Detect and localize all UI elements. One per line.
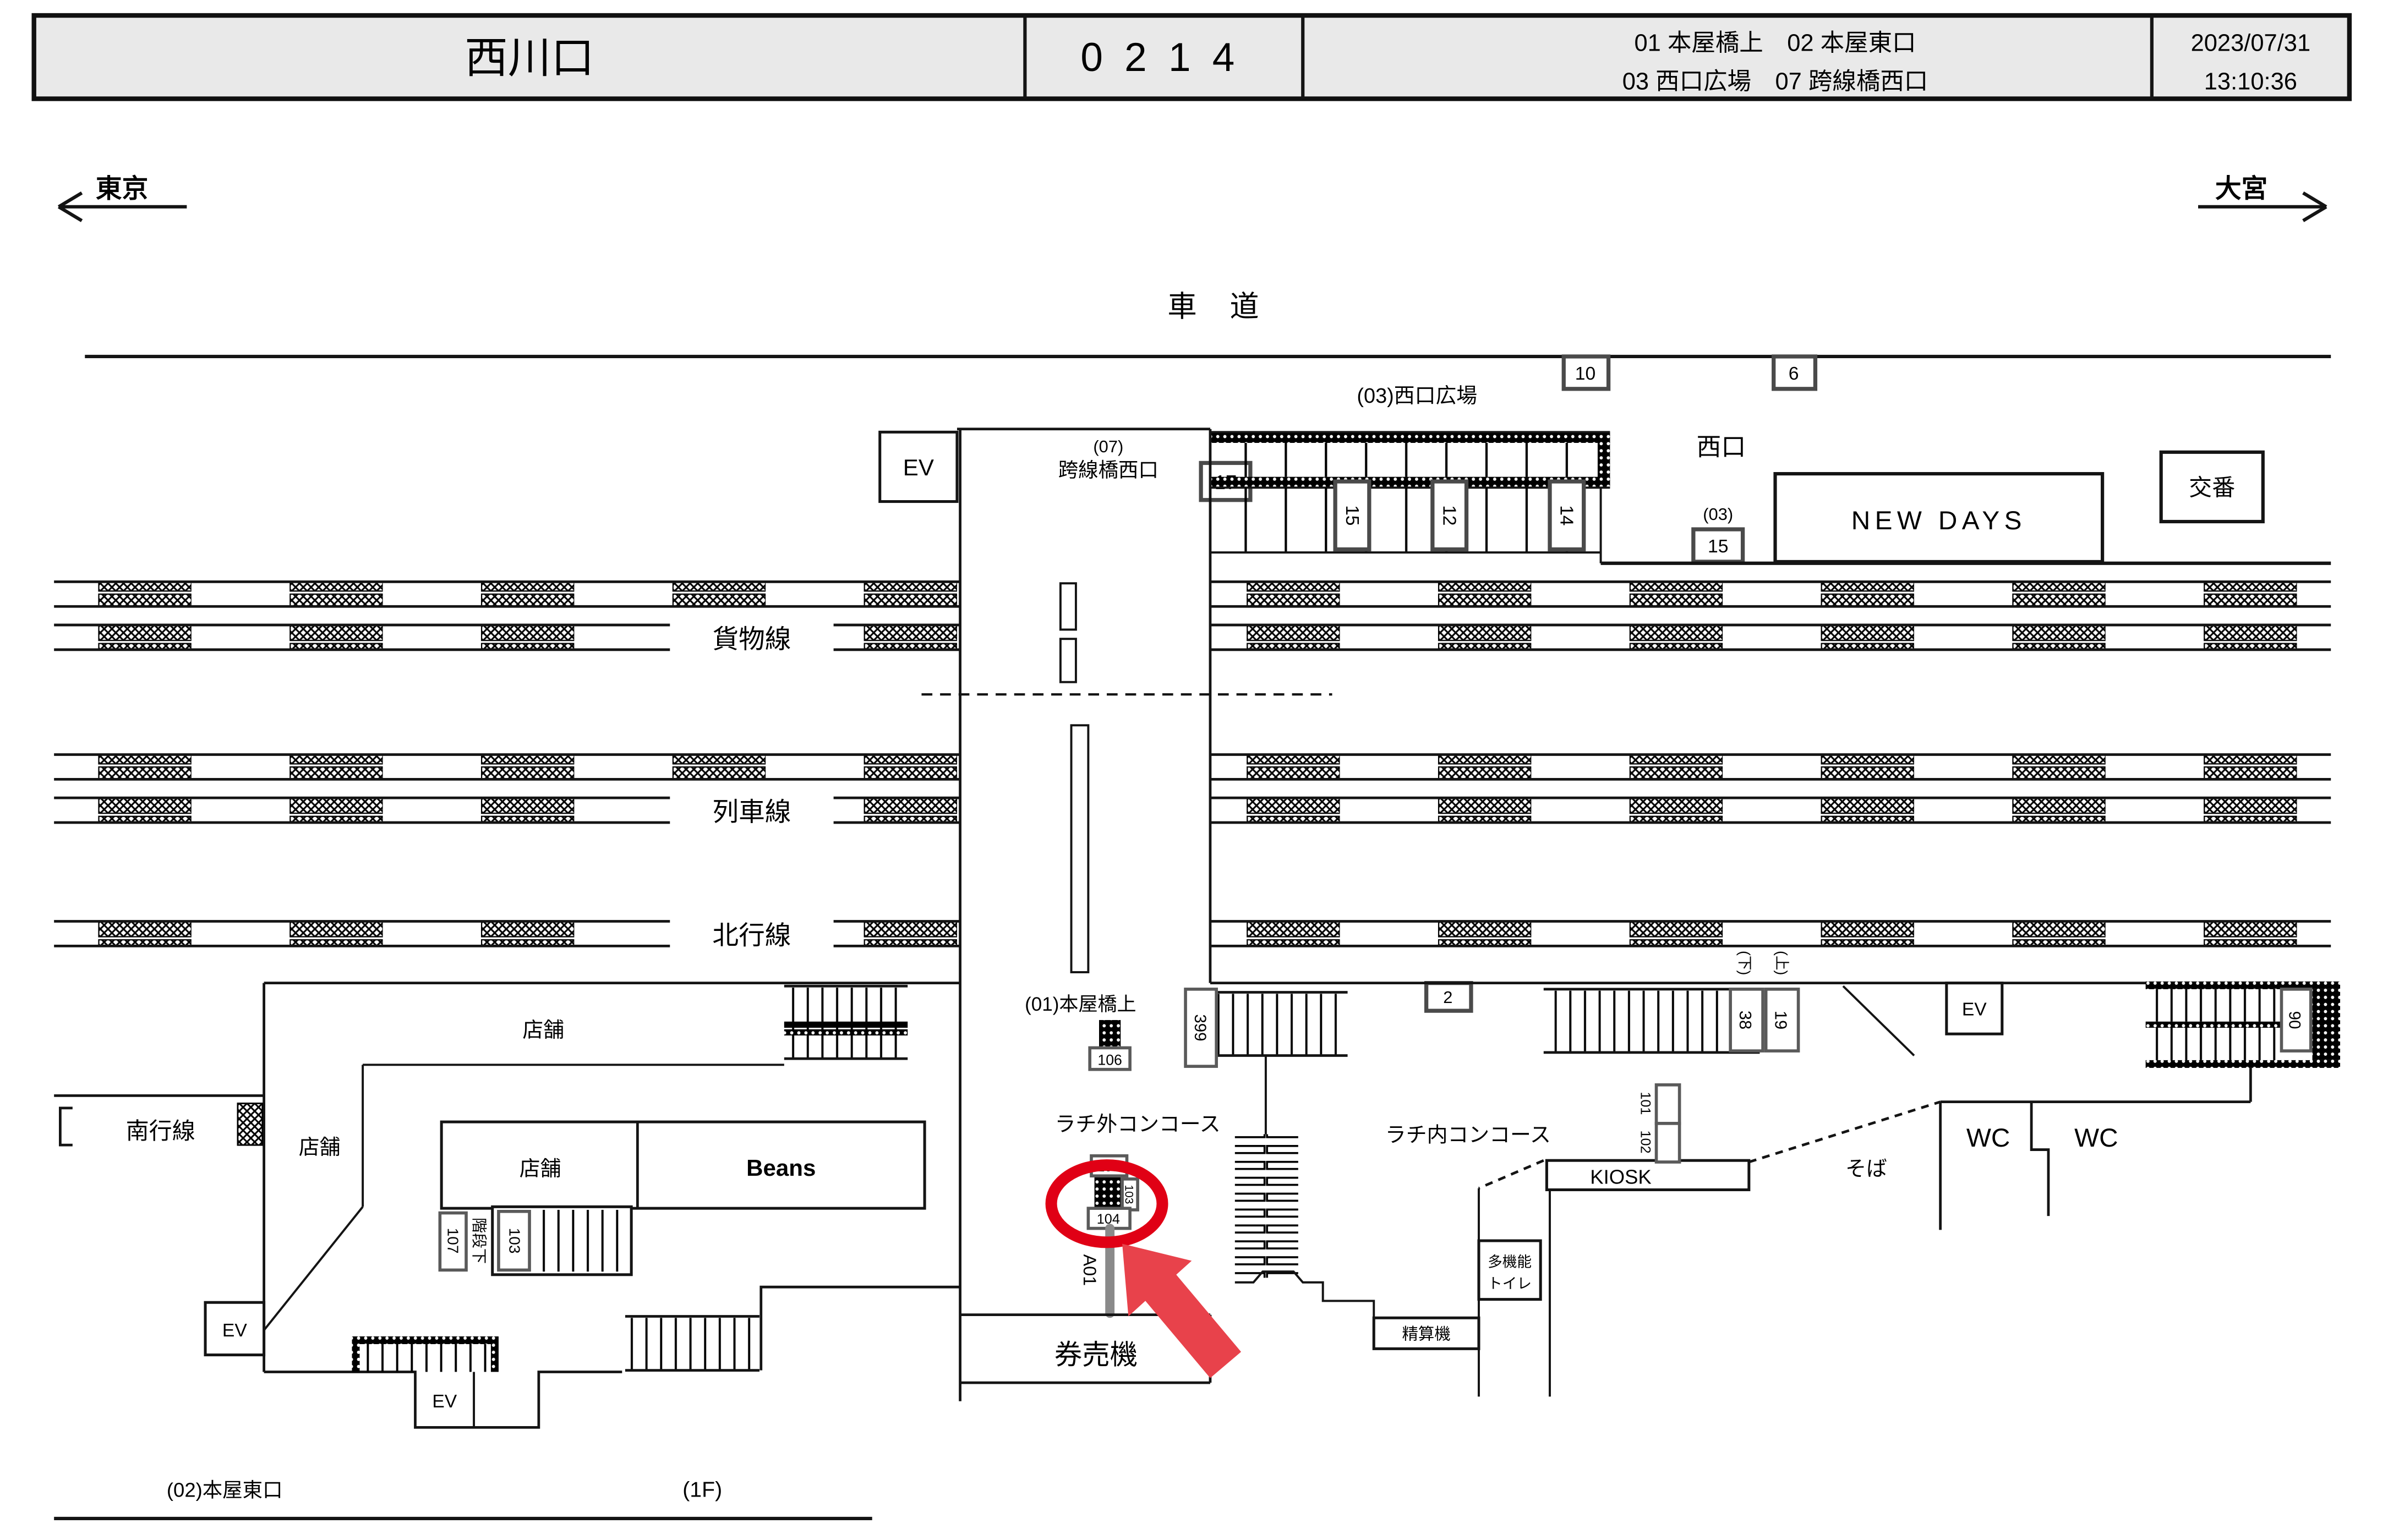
tracks-right: [1210, 582, 2331, 946]
track-band: [54, 755, 960, 780]
position-15-code: (03): [1703, 505, 1733, 524]
police-box-label: 交番: [2189, 474, 2235, 500]
soba-stand-label: そば: [1845, 1158, 1887, 1181]
northbound-line-label: 北行線: [712, 922, 791, 951]
position-box-103-label: 103: [506, 1228, 523, 1254]
position-box-14v-label: 14: [1556, 505, 1577, 525]
track-band: [1210, 755, 2331, 780]
southbound-line-label: 南行線: [126, 1118, 195, 1144]
direction-omiya: 大宮: [2198, 174, 2326, 221]
timestamp-date: 2023/07/31: [2191, 30, 2311, 57]
track-band: [1210, 582, 2331, 606]
beans-store-label: Beans: [746, 1155, 816, 1181]
position-box-2-label: 2: [1443, 988, 1452, 1007]
position-box-101: [1657, 1085, 1680, 1124]
west-exit-label: 西口: [1696, 432, 1746, 461]
store-label-3: 店舗: [520, 1158, 561, 1181]
position-box-15-label: 15: [1708, 536, 1728, 557]
wc-left-label: WC: [1966, 1124, 2010, 1153]
track-band: [1210, 798, 2331, 823]
track-band: [54, 582, 960, 606]
direction-tokyo: 東京: [59, 174, 187, 221]
outside-gates-label: ラチ外コンコース: [1055, 1113, 1221, 1136]
store-label-1: 店舗: [522, 1019, 564, 1042]
bridge-corridor: [1210, 432, 1610, 487]
bridge-west-exit-code: (07): [1093, 437, 1123, 456]
under-stairs-positions: 107 階段下 103: [440, 1207, 631, 1274]
kiosk-label: KIOSK: [1590, 1165, 1651, 1188]
station-name: 西川口: [465, 34, 594, 82]
east-double-stairs: 90: [2146, 982, 2340, 1068]
accessible-toilet-label2: トイレ: [1488, 1275, 1532, 1292]
kiosk: KIOSK 101 102: [1547, 1085, 1748, 1397]
position-box-15v-label: 15: [1342, 505, 1362, 525]
bridge-stairs: [1210, 487, 1601, 563]
position-box-102-label: 102: [1637, 1130, 1653, 1153]
store-beans-block: 店舗 Beans: [441, 1122, 925, 1208]
southbound-line: 南行線: [54, 1095, 264, 1145]
under-stairs-label: 階段下: [471, 1218, 488, 1264]
accessible-toilet-label1: 多機能: [1488, 1254, 1532, 1270]
east-concourse: 店舗 店舗 南行線 店舗 Beans 107 階段下 103: [54, 983, 960, 1519]
track-band: [1210, 921, 2331, 946]
elevator-west-label: EV: [903, 454, 934, 480]
store-stairs: [784, 986, 908, 1059]
position-box-12v-label: 12: [1439, 505, 1459, 525]
fare-adjustment-label: 精算機: [1402, 1325, 1450, 1344]
train-line-label: 列車線: [712, 798, 791, 827]
elevator-south-label: EV: [432, 1391, 457, 1412]
position-a01-label: A01: [1080, 1254, 1100, 1286]
platform-stairs: [1544, 989, 1760, 1053]
down-label: (下): [1736, 951, 1753, 975]
omiya-label: 大宮: [2215, 174, 2267, 204]
tokyo-label: 東京: [96, 174, 148, 204]
elevator-east-label: EV: [1962, 1000, 1987, 1020]
position-box-38-label: 38: [1736, 1011, 1755, 1029]
west-footbridge: EV (07) 跨線橋西口 17 15 12 14: [880, 429, 1610, 563]
floor-label: (1F): [682, 1478, 722, 1502]
east-exit-label: (02)本屋東口: [167, 1479, 283, 1501]
south-stairs: [625, 1316, 759, 1370]
position-box-399-label: 399: [1191, 1014, 1209, 1041]
paid-concourse: 38 19 (下) (上) EV 90 WC WC そば ラチ内コンコー: [1210, 951, 2340, 1396]
west-plaza-label: (03)西口広場: [1357, 385, 1477, 408]
up-label: (上): [1773, 951, 1790, 975]
tracks-left: 貨物線 列車線 北行線: [54, 582, 960, 952]
ticket-machines-label: 券売機: [1054, 1339, 1138, 1370]
ticket-gates: [1235, 1135, 1298, 1278]
road: 車 道 10 6 (03)西口広場: [85, 291, 2331, 408]
inside-gates-label: ラチ内コンコース: [1385, 1124, 1551, 1147]
bridge-position-label: (01)本屋橋上: [1025, 994, 1136, 1015]
timestamp-time: 13:10:36: [2204, 69, 2297, 95]
track-band: [1210, 625, 2331, 650]
position-box-107-label: 107: [444, 1228, 461, 1254]
bridge-west-exit-label: 跨線橋西口: [1058, 459, 1159, 481]
camera-list-line1: 01 本屋橋上 02 本屋東口: [1634, 30, 1916, 57]
station-code: 0214: [1080, 35, 1256, 80]
store-label-2: 店舗: [299, 1136, 341, 1159]
station-map: 西川口 0214 01 本屋橋上 02 本屋東口 03 西口広場 07 跨線橋西…: [0, 0, 2388, 1540]
hatched-stairs: [352, 1336, 498, 1372]
wc-block: WC WC: [1941, 1068, 2251, 1230]
position-box-101-label: 101: [1637, 1092, 1653, 1115]
gate-fence: [1235, 1272, 1374, 1318]
wc-right-label: WC: [2074, 1124, 2118, 1153]
camera-list-line2: 03 西口広場 07 跨線橋西口: [1622, 69, 1928, 95]
highlight-arrow-icon: [1122, 1244, 1241, 1378]
road-label: 車 道: [1167, 291, 1271, 323]
position-box-103b-label: 103: [1123, 1185, 1135, 1204]
freight-line-label: 貨物線: [712, 625, 791, 654]
position-box-10-label: 10: [1575, 364, 1595, 384]
newdays-label: NEW DAYS: [1851, 506, 2026, 535]
position-box-102: [1657, 1124, 1680, 1162]
position-box-6-label: 6: [1789, 364, 1799, 384]
ticket-office-block: [761, 1287, 960, 1370]
west-exit-area: 西口 (03) 15 NEW DAYS 交番: [1601, 432, 2331, 563]
position-box-106-label: 106: [1097, 1051, 1122, 1068]
position-box-19-label: 19: [1772, 1011, 1791, 1029]
position-box-90-label: 90: [2285, 1011, 2303, 1029]
elevator-southwest-label: EV: [222, 1320, 247, 1341]
header-bar: 西川口 0214 01 本屋橋上 02 本屋東口 03 西口広場 07 跨線橋西…: [34, 15, 2349, 98]
toilet-fare-adjust: 多機能 トイレ 精算機: [1374, 1188, 1540, 1397]
